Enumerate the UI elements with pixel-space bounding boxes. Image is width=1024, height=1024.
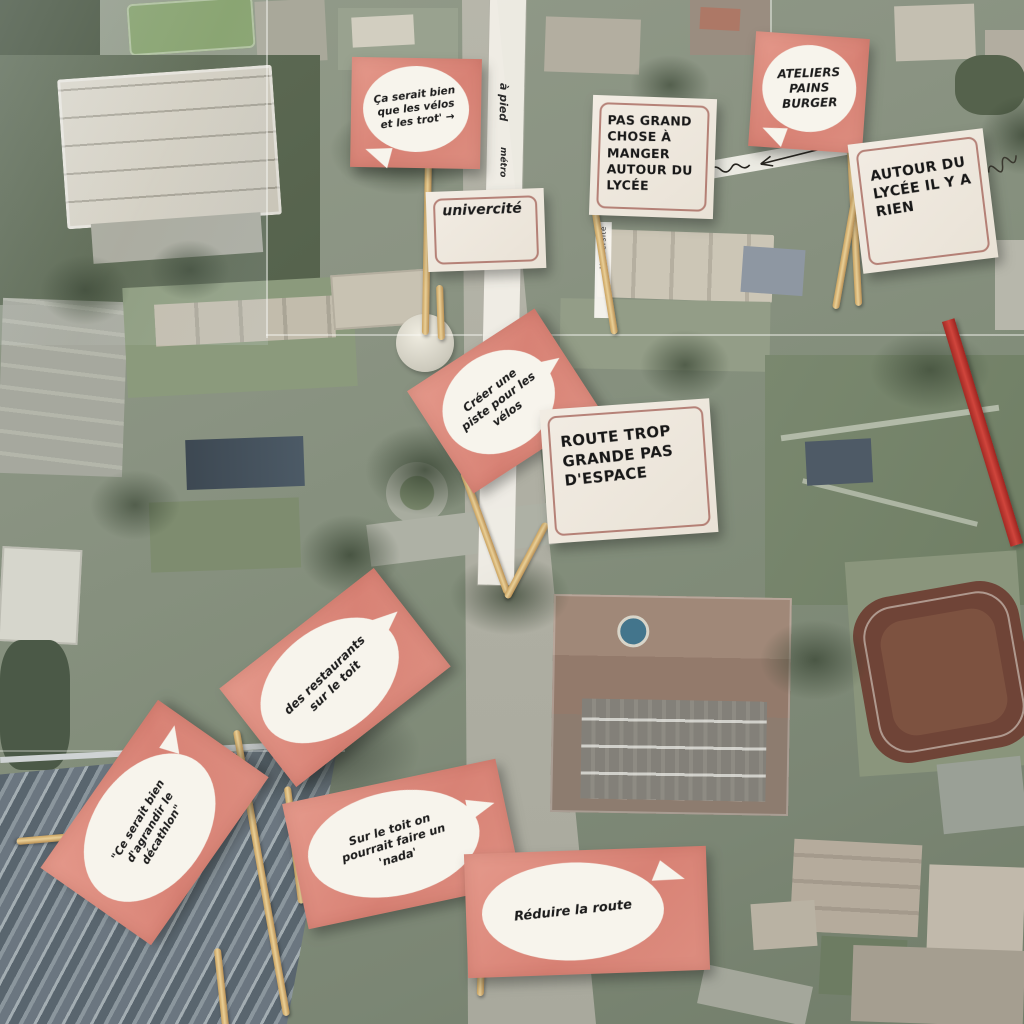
flag-pas-grand-chose: PAS GRAND CHOSE À MANGER AUTOUR DU LYCÉE xyxy=(589,95,717,219)
speech-bubble: ATELIERS PAINS BURGER xyxy=(759,42,859,135)
bubble-tail xyxy=(465,794,497,821)
map-sheet-gloss xyxy=(0,0,268,345)
flag-text: Créer une piste pour les vélos xyxy=(447,356,550,448)
flag-text: des restaurants sur le toit xyxy=(280,631,380,729)
map-redroof-building xyxy=(699,7,740,31)
map-white-buildings xyxy=(0,546,82,645)
tape-label-a-pied: à pied xyxy=(497,83,511,121)
flag-reduire: Réduire la route xyxy=(464,846,710,978)
map-road xyxy=(697,964,813,1024)
map-sheet-seam xyxy=(266,0,268,338)
map-solar-roof xyxy=(185,436,305,490)
bubble-tail xyxy=(652,860,688,892)
map-pool xyxy=(617,615,650,648)
map-building-block xyxy=(894,4,976,62)
map-athletics-track xyxy=(847,575,1024,770)
map-rooftop-parking xyxy=(580,698,767,801)
flag-stick xyxy=(436,285,445,340)
flag-text: PAS GRAND CHOSE À MANGER AUTOUR DU LYCÉE xyxy=(606,112,702,206)
flag-univercite: univercité xyxy=(426,188,547,272)
flag-route-trop-grande: ROUTE TROP GRANDE PAS D'ESPACE xyxy=(540,398,719,544)
map-concrete-edge xyxy=(995,240,1024,330)
flag-text: Réduire la route xyxy=(513,897,632,926)
flag-text: Sur le toit on pourrait faire un 'nada' xyxy=(321,803,467,885)
aerial-map-photo: à pied métro Université Ça serait bien q… xyxy=(0,0,1024,1024)
map-lot xyxy=(937,756,1024,834)
flag-text: ROUTE TROP GRANDE PAS D'ESPACE xyxy=(560,419,701,528)
flag-text: AUTOUR DU LYCÉE IL Y A RIEN xyxy=(869,152,982,259)
speech-bubble: Ça serait bien que les vélos et les trot… xyxy=(362,65,469,153)
bubble-tail xyxy=(159,723,187,754)
map-dark-roof xyxy=(805,438,873,485)
flag-autour-lycee: AUTOUR DU LYCÉE IL Y A RIEN xyxy=(848,128,999,274)
flag-text: univercité xyxy=(442,201,522,221)
speech-bubble: Réduire la route xyxy=(480,859,665,963)
map-roundabout xyxy=(386,462,448,524)
flag-text: Ça serait bien que les vélos et les trot… xyxy=(371,84,461,134)
map-building-block xyxy=(351,14,414,47)
map-housing-block xyxy=(927,864,1024,951)
map-housing-block xyxy=(851,945,1024,1024)
speech-bubble: Sur le toit on pourrait faire un 'nada' xyxy=(298,775,490,913)
flag-velos-trot: Ça serait bien que les vélos et les trot… xyxy=(350,57,482,169)
map-trees xyxy=(955,55,1024,115)
flag-text: "Ce serait bien d'agrandir le décathlon" xyxy=(99,761,201,894)
flag-text: ATELIERS PAINS BURGER xyxy=(769,65,851,113)
map-track-infield xyxy=(877,605,1011,739)
map-sheet-seam xyxy=(266,334,1024,336)
map-building-block xyxy=(544,16,641,74)
map-lawn xyxy=(149,497,301,572)
map-building-block xyxy=(740,246,805,296)
flag-ateliers: ATELIERS PAINS BURGER xyxy=(748,31,870,154)
map-building-block xyxy=(750,900,817,950)
map-rooftop-building xyxy=(550,594,792,816)
tape-label-metro: métro xyxy=(497,147,508,178)
